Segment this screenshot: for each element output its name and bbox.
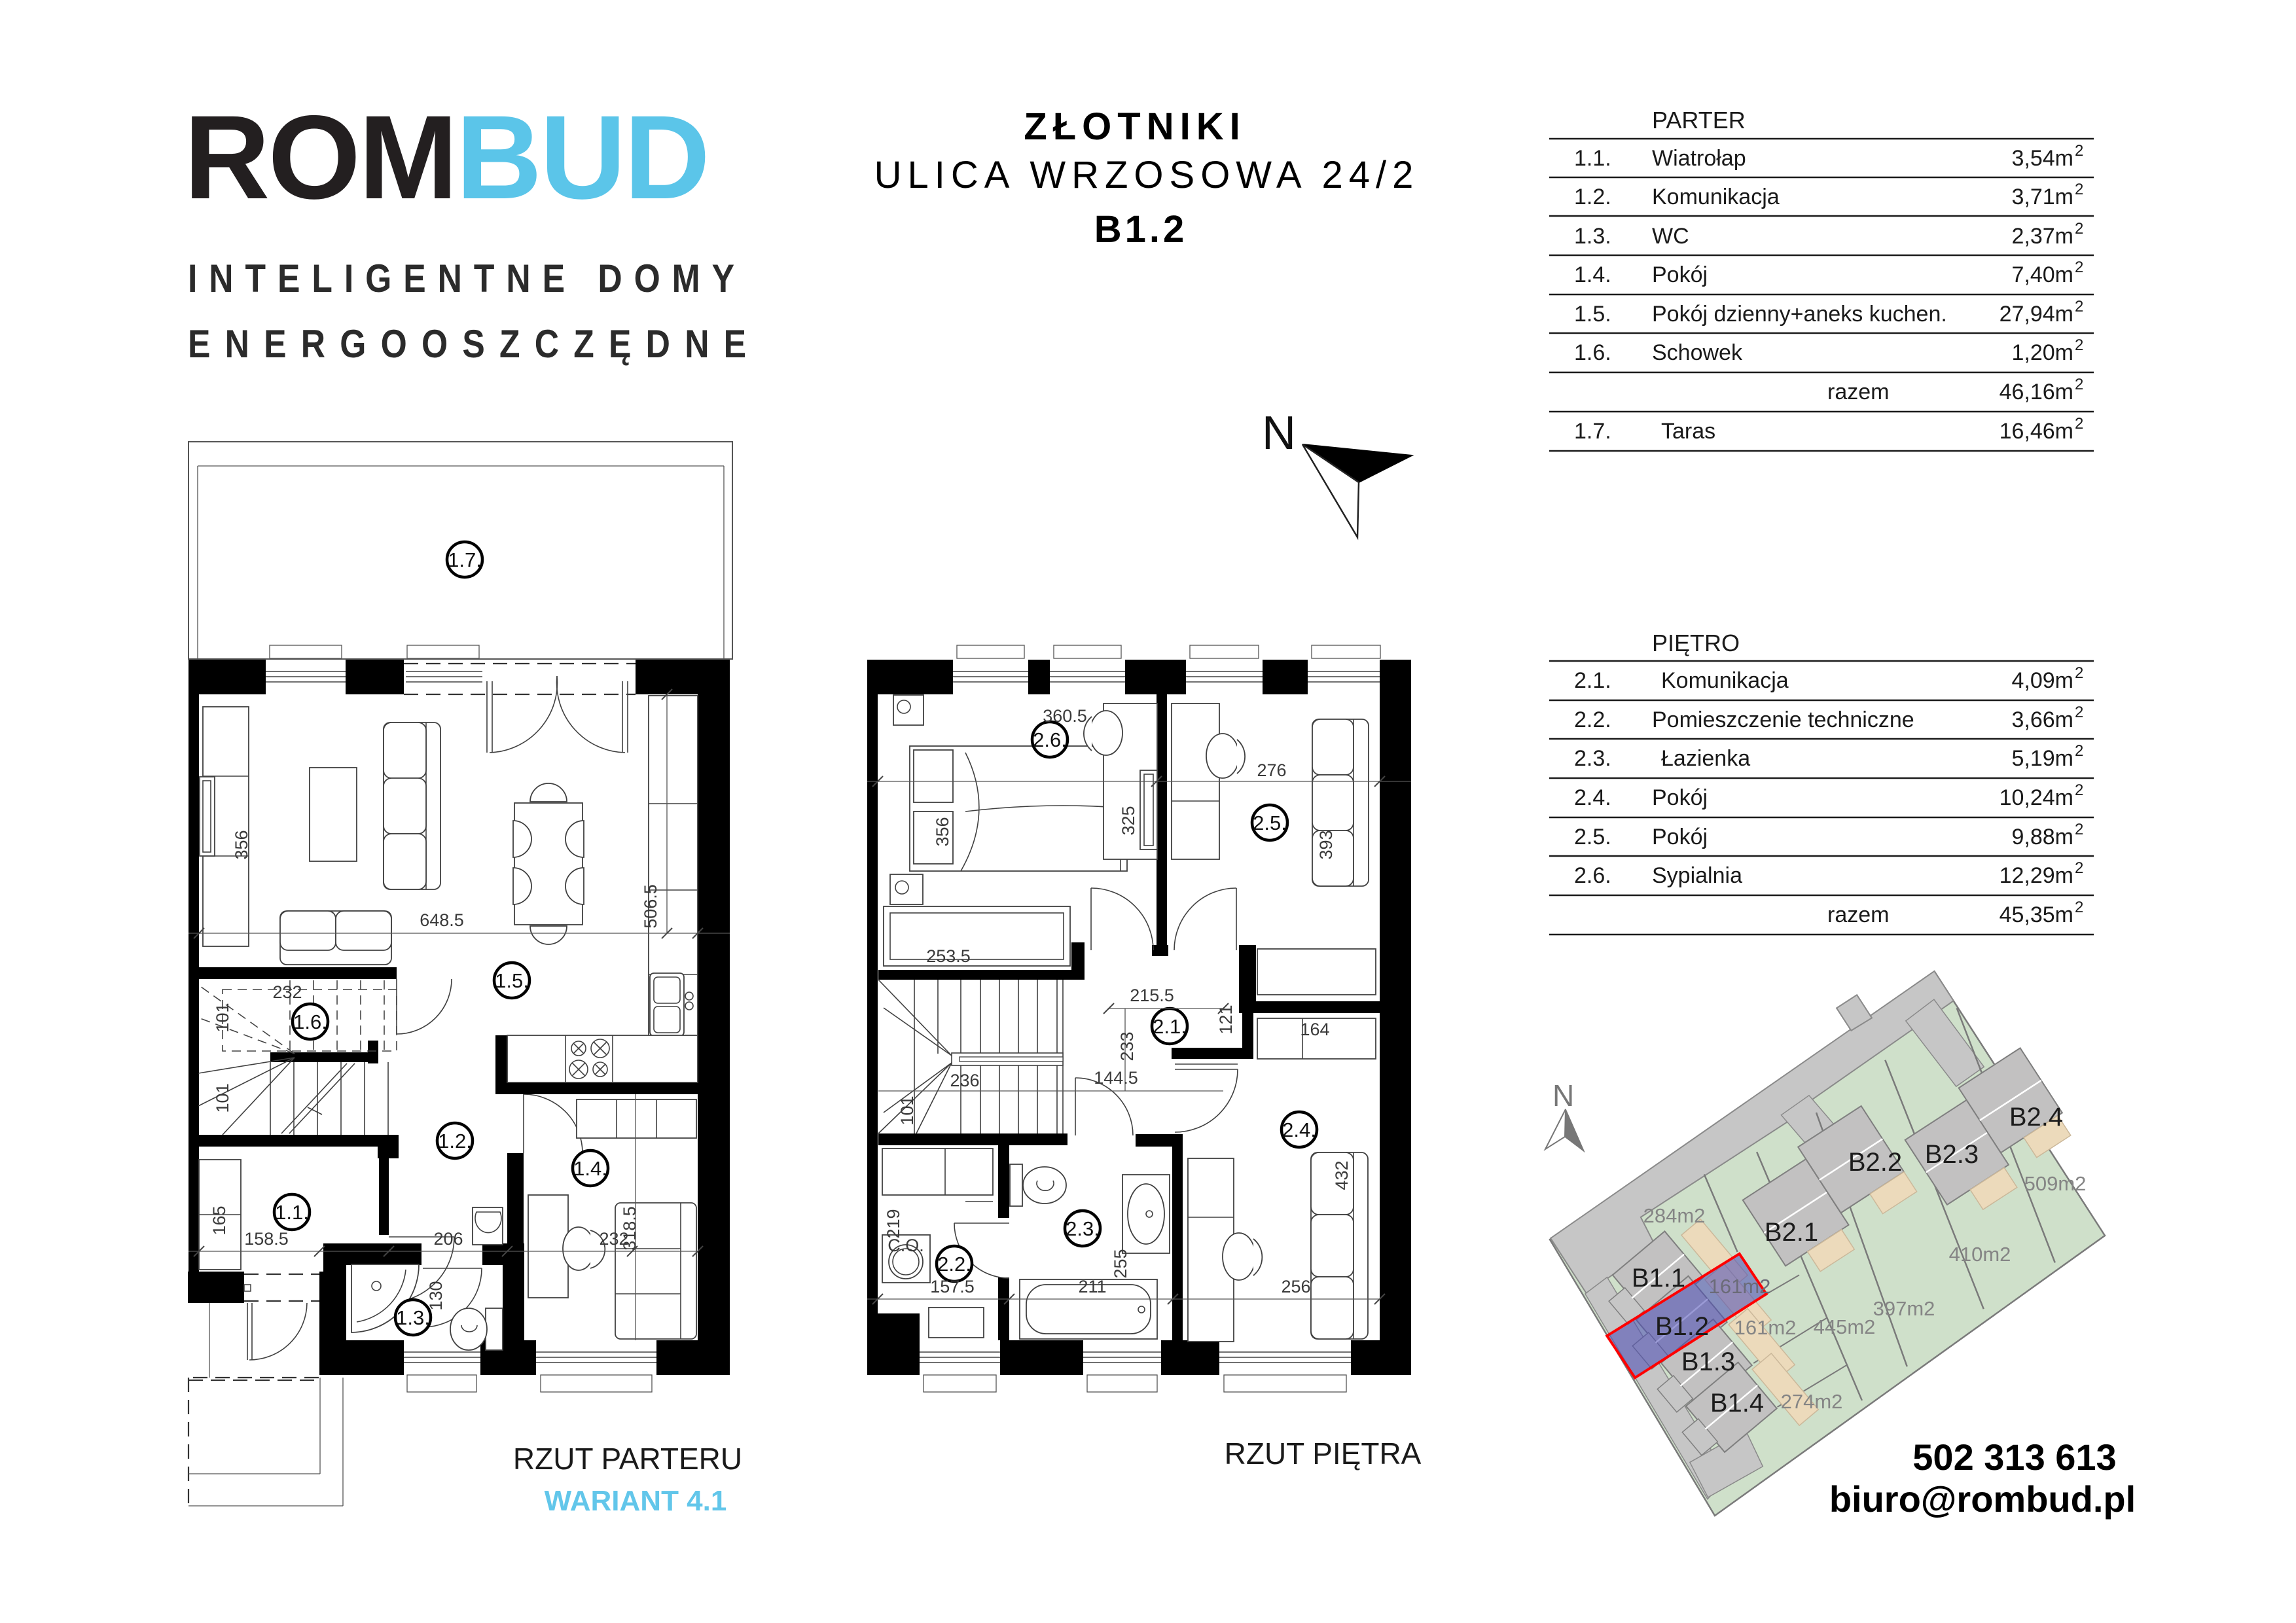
svg-text:121: 121 (1216, 1005, 1236, 1034)
svg-text:356: 356 (232, 830, 251, 859)
svg-text:B2.3: B2.3 (1925, 1140, 1979, 1169)
svg-text:1.6.: 1.6. (293, 1010, 327, 1033)
svg-text:WC: WC (1652, 224, 1689, 249)
svg-text:2.1.: 2.1. (1574, 668, 1611, 693)
svg-text:1.5.: 1.5. (1574, 302, 1611, 327)
svg-text:256: 256 (1281, 1277, 1310, 1296)
svg-text:ULICA WRZOSOWA 24/2: ULICA WRZOSOWA 24/2 (874, 154, 1420, 196)
svg-text:2.6.: 2.6. (1033, 728, 1067, 751)
svg-text:Komunikacja: Komunikacja (1652, 185, 1780, 209)
svg-text:164: 164 (1300, 1020, 1329, 1039)
svg-text:RZUT PARTERU: RZUT PARTERU (513, 1442, 742, 1476)
svg-text:161m2: 161m2 (1734, 1316, 1797, 1339)
svg-text:B1.4: B1.4 (1710, 1389, 1764, 1418)
svg-text:211: 211 (1078, 1277, 1106, 1296)
svg-text:Pokój: Pokój (1652, 825, 1708, 849)
svg-text:276: 276 (1257, 760, 1286, 780)
svg-text:318.5: 318.5 (620, 1206, 639, 1251)
svg-text:2: 2 (2075, 181, 2083, 198)
svg-text:2: 2 (2075, 298, 2083, 315)
svg-text:1.7.: 1.7. (1574, 419, 1611, 444)
svg-text:393: 393 (1316, 830, 1336, 859)
svg-text:Pokój: Pokój (1652, 785, 1708, 810)
svg-text:1.1.: 1.1. (1574, 146, 1611, 171)
svg-text:509m2: 509m2 (2024, 1172, 2087, 1195)
svg-text:206: 206 (433, 1229, 463, 1249)
svg-text:ROMBUD: ROMBUD (184, 90, 708, 224)
svg-text:Komunikacja: Komunikacja (1661, 668, 1789, 693)
svg-text:161m2: 161m2 (1709, 1275, 1771, 1298)
svg-text:PIĘTRO: PIĘTRO (1652, 630, 1740, 656)
svg-text:razem: razem (1827, 380, 1889, 404)
svg-text:2: 2 (2075, 821, 2083, 838)
svg-text:PARTER: PARTER (1652, 107, 1746, 134)
svg-text:N: N (1262, 407, 1296, 459)
svg-text:253.5: 253.5 (926, 946, 971, 966)
svg-text:2: 2 (2075, 781, 2083, 799)
svg-text:RZUT PIĘTRA: RZUT PIĘTRA (1225, 1436, 1422, 1471)
svg-text:3,66m: 3,66m (2012, 707, 2074, 732)
svg-text:2.5.: 2.5. (1574, 825, 1611, 849)
svg-text:236: 236 (950, 1071, 979, 1090)
svg-text:1.5.: 1.5. (495, 969, 529, 992)
svg-text:410m2: 410m2 (1949, 1243, 2011, 1266)
svg-text:45,35m: 45,35m (2000, 902, 2073, 927)
svg-text:232: 232 (272, 982, 302, 1002)
svg-text:2: 2 (2075, 704, 2083, 721)
svg-text:2.3.: 2.3. (1066, 1217, 1100, 1240)
svg-text:2: 2 (2075, 664, 2083, 682)
svg-text:B1.3: B1.3 (1681, 1347, 1735, 1376)
svg-text:Wiatrołap: Wiatrołap (1652, 146, 1746, 171)
svg-text:Taras: Taras (1661, 419, 1715, 444)
svg-text:B2.4: B2.4 (2009, 1103, 2063, 1132)
svg-text:144.5: 144.5 (1094, 1068, 1138, 1088)
svg-text:158.5: 158.5 (244, 1229, 289, 1249)
svg-text:biuro@rombud.pl: biuro@rombud.pl (1829, 1478, 2136, 1520)
svg-text:502 313 613: 502 313 613 (1912, 1436, 2116, 1478)
svg-text:130: 130 (426, 1281, 446, 1310)
svg-text:1.3.: 1.3. (1574, 224, 1611, 249)
svg-text:255: 255 (1111, 1249, 1130, 1278)
svg-text:2: 2 (2075, 415, 2083, 433)
svg-text:2: 2 (2075, 376, 2083, 393)
svg-text:3,54m: 3,54m (2012, 146, 2074, 171)
svg-text:2: 2 (2075, 142, 2083, 160)
svg-text:10,24m: 10,24m (2000, 785, 2073, 810)
svg-text:27,94m: 27,94m (2000, 302, 2073, 327)
svg-text:5,19m: 5,19m (2012, 746, 2074, 771)
svg-text:2,37m: 2,37m (2012, 224, 2074, 249)
svg-text:2.3.: 2.3. (1574, 746, 1611, 771)
svg-text:1.4.: 1.4. (573, 1157, 607, 1180)
svg-text:233: 233 (1117, 1031, 1137, 1061)
svg-text:2: 2 (2075, 899, 2083, 916)
svg-text:B1.2: B1.2 (1655, 1312, 1709, 1341)
svg-text:2: 2 (2075, 742, 2083, 760)
svg-text:284m2: 284m2 (1643, 1204, 1706, 1227)
svg-text:1.2.: 1.2. (1574, 185, 1611, 209)
svg-text:4,09m: 4,09m (2012, 668, 2074, 693)
svg-text:Schowek: Schowek (1652, 340, 1743, 365)
svg-text:101: 101 (213, 1003, 232, 1032)
svg-text:razem: razem (1827, 902, 1889, 927)
svg-text:215.5: 215.5 (1130, 986, 1174, 1005)
svg-text:101: 101 (897, 1096, 917, 1125)
svg-text:2: 2 (2075, 336, 2083, 354)
svg-text:101: 101 (213, 1083, 232, 1113)
svg-text:B2.2: B2.2 (1848, 1148, 1902, 1177)
svg-text:ZŁOTNIKI: ZŁOTNIKI (1024, 105, 1246, 148)
svg-text:274m2: 274m2 (1781, 1390, 1843, 1413)
svg-text:1.1.: 1.1. (275, 1201, 309, 1224)
svg-text:Pomieszczenie techniczne: Pomieszczenie techniczne (1652, 707, 1914, 732)
svg-text:356: 356 (933, 817, 952, 846)
svg-text:2.5.: 2.5. (1253, 811, 1287, 834)
svg-text:Pokój: Pokój (1652, 262, 1708, 287)
svg-text:2: 2 (2075, 859, 2083, 877)
svg-text:2.1.: 2.1. (1153, 1015, 1187, 1038)
svg-text:7,40m: 7,40m (2012, 262, 2074, 287)
svg-text:B1.2: B1.2 (1094, 208, 1188, 251)
svg-text:157.5: 157.5 (930, 1277, 975, 1296)
svg-text:2.4.: 2.4. (1574, 785, 1611, 810)
svg-text:2: 2 (2075, 259, 2083, 276)
svg-text:2.6.: 2.6. (1574, 863, 1611, 888)
svg-text:2.2.: 2.2. (937, 1253, 971, 1275)
svg-text:46,16m: 46,16m (2000, 380, 2073, 404)
svg-text:1.7.: 1.7. (448, 548, 482, 571)
svg-text:1.2.: 1.2. (438, 1130, 472, 1152)
svg-text:Sypialnia: Sypialnia (1652, 863, 1742, 888)
svg-text:360.5: 360.5 (1043, 706, 1087, 726)
svg-text:445m2: 445m2 (1814, 1315, 1876, 1338)
svg-text:N: N (1552, 1079, 1574, 1113)
svg-text:397m2: 397m2 (1873, 1297, 1935, 1320)
svg-text:1.3.: 1.3. (396, 1306, 430, 1329)
svg-text:16,46m: 16,46m (2000, 419, 2073, 444)
svg-text:2: 2 (2075, 220, 2083, 238)
svg-text:2.4.: 2.4. (1282, 1118, 1316, 1141)
svg-text:648.5: 648.5 (420, 910, 464, 930)
svg-text:B1.1: B1.1 (1632, 1264, 1685, 1293)
svg-text:12,29m: 12,29m (2000, 863, 2073, 888)
svg-text:1.6.: 1.6. (1574, 340, 1611, 365)
svg-text:432: 432 (1332, 1160, 1352, 1190)
svg-text:9,88m: 9,88m (2012, 825, 2074, 849)
svg-text:1,20m: 1,20m (2012, 340, 2074, 365)
svg-text:WARIANT 4.1: WARIANT 4.1 (545, 1485, 727, 1517)
svg-text:1.4.: 1.4. (1574, 262, 1611, 287)
svg-text:3,71m: 3,71m (2012, 185, 2074, 209)
svg-text:ENERGOOSZCZĘDNE: ENERGOOSZCZĘDNE (188, 321, 746, 366)
svg-text:325: 325 (1119, 806, 1138, 835)
svg-text:B2.1: B2.1 (1765, 1218, 1818, 1247)
svg-text:165: 165 (209, 1205, 229, 1235)
svg-text:219: 219 (884, 1209, 903, 1238)
svg-text:Łazienka: Łazienka (1661, 746, 1750, 771)
svg-text:Pokój dzienny+aneks kuchen.: Pokój dzienny+aneks kuchen. (1652, 302, 1947, 327)
svg-text:506.5: 506.5 (641, 884, 660, 929)
svg-text:2.2.: 2.2. (1574, 707, 1611, 732)
